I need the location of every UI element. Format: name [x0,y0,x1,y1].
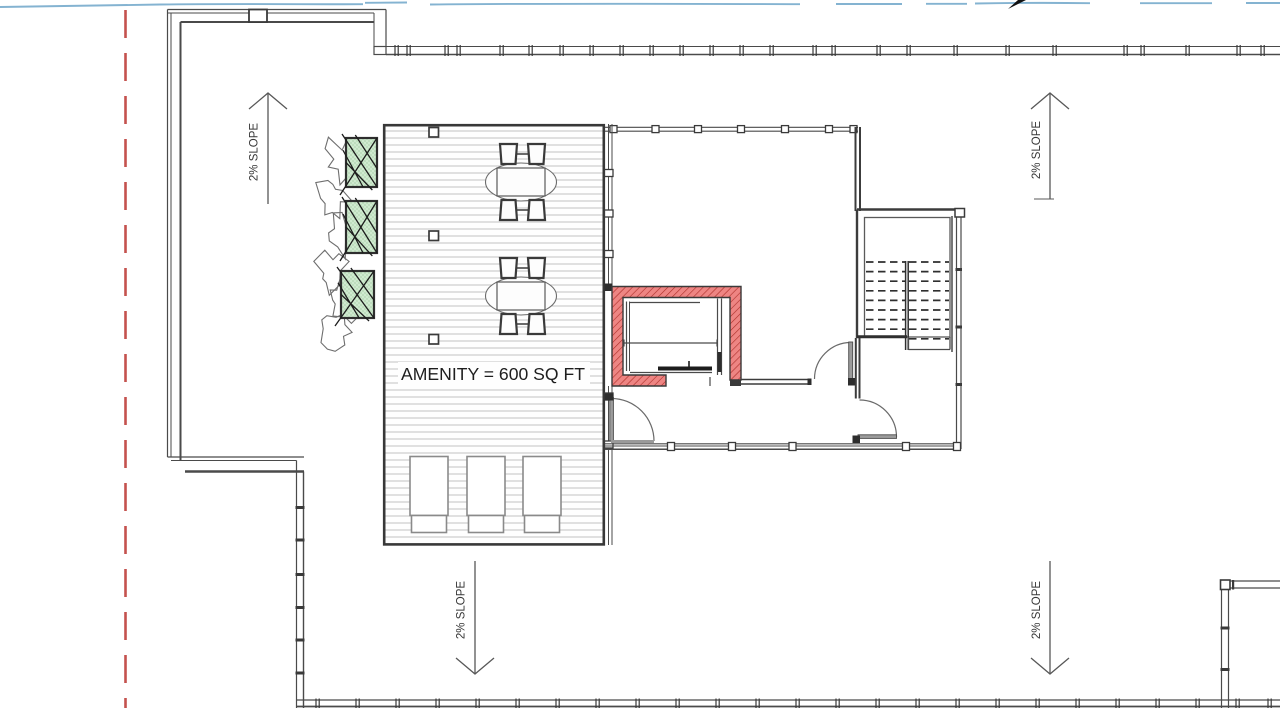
svg-text:AMENITY = 600 SQ FT: AMENITY = 600 SQ FT [401,364,585,384]
svg-text:2% SLOPE: 2% SLOPE [456,581,468,639]
svg-text:2% SLOPE: 2% SLOPE [1031,581,1043,639]
svg-text:2% SLOPE: 2% SLOPE [1031,121,1043,179]
svg-text:2% SLOPE: 2% SLOPE [249,123,261,181]
